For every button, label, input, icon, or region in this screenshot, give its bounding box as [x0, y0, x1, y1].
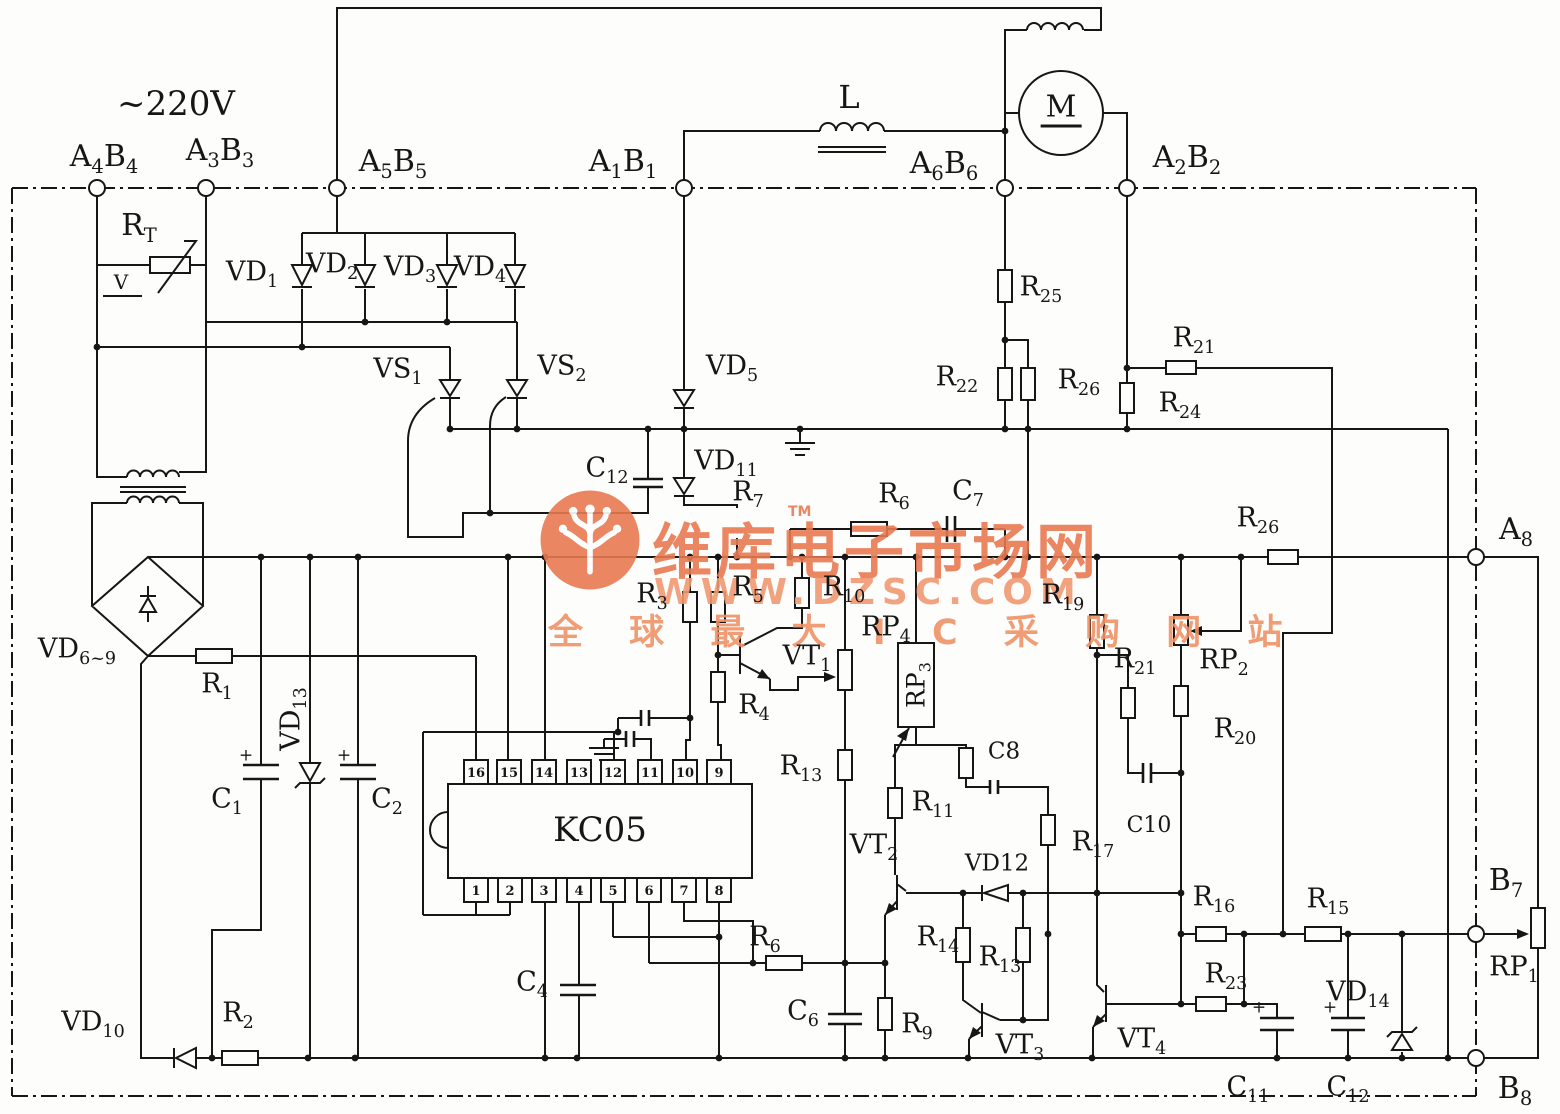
- terminal-dot-a4b4: [89, 180, 105, 196]
- label-plus-c2: +: [337, 748, 351, 765]
- ic-pin-14: 14: [535, 766, 553, 781]
- ic-pin-10: 10: [676, 766, 694, 781]
- terminal-dot-b7: [1468, 926, 1484, 942]
- terminal-dot-a8: [1468, 549, 1484, 565]
- label-cap-c4: C4: [516, 969, 548, 996]
- ic-pin-11: 11: [641, 766, 659, 781]
- terminal-dot-a5b5: [329, 180, 345, 196]
- resistors: [150, 257, 1545, 1065]
- ground-symbols: [589, 443, 815, 760]
- label-diode-vd10: VD10: [61, 1009, 124, 1036]
- label-cap-c7: C7: [952, 478, 984, 505]
- label-res-r15: R15: [1307, 886, 1350, 913]
- ic-pin-6: 6: [644, 884, 653, 899]
- label-res-r6-top: R6: [878, 481, 910, 508]
- label-pot-rp4: RP4: [861, 614, 911, 641]
- label-ic-kc05: KC05: [553, 813, 647, 847]
- label-transistor-vt3: VT3: [996, 1032, 1045, 1059]
- label-res-r20: R20: [1214, 716, 1257, 743]
- ic-pin-7: 7: [679, 884, 688, 899]
- label-pot-rp1: RP1: [1489, 954, 1539, 981]
- label-diode-vd13: VD13: [278, 687, 305, 750]
- label-bridge-vd6-9: VD6~9: [38, 636, 116, 663]
- label-diode-vd12: VD12: [965, 853, 1029, 876]
- label-res-r25: R25: [1020, 274, 1063, 301]
- label-pot-rp2: RP2: [1199, 647, 1249, 674]
- label-res-r13-a: R13: [780, 753, 823, 780]
- ic-pin-12: 12: [604, 766, 622, 781]
- label-plus-c11: +: [1252, 1000, 1266, 1017]
- label-terminal-b7: B7: [1489, 866, 1523, 896]
- label-cap-c6: C6: [787, 998, 819, 1025]
- ic-pin-15: 15: [500, 766, 518, 781]
- label-res-r23: R23: [1205, 961, 1248, 988]
- ic-pin-1: 1: [471, 884, 480, 899]
- label-varistor-v: V: [114, 272, 128, 292]
- label-cap-c12-top: C12: [586, 455, 629, 482]
- ic-pin-2: 2: [505, 884, 514, 899]
- label-res-r21-mid: R21: [1114, 646, 1157, 673]
- label-res-r24: R24: [1159, 390, 1202, 417]
- label-res-r26-mid: R26: [1058, 367, 1101, 394]
- label-thyristor-vs1: VS1: [373, 356, 422, 383]
- label-res-r16: R16: [1193, 884, 1236, 911]
- chassis-border: [12, 188, 1476, 1096]
- label-res-r26-right: R26: [1237, 505, 1280, 532]
- label-transistor-vt2: VT2: [850, 832, 899, 859]
- label-res-r14: R14: [917, 924, 960, 951]
- label-res-r10: R10: [823, 574, 866, 601]
- label-transistor-vt1: VT1: [783, 643, 832, 670]
- label-cap-c8: C8: [988, 741, 1020, 764]
- label-res-r7: R7: [732, 479, 764, 506]
- label-diode-vd4: VD4: [454, 254, 506, 281]
- ic-pin-16: 16: [467, 766, 485, 781]
- label-res-r13-b: R13: [979, 944, 1022, 971]
- label-cap-c2: C2: [371, 786, 403, 813]
- label-diode-vd11: VD11: [694, 448, 757, 475]
- label-thermistor-rt: RT: [121, 211, 157, 241]
- label-res-r6-bottom: R6: [749, 924, 781, 951]
- label-res-r9: R9: [901, 1011, 933, 1038]
- label-transistor-vt4: VT4: [1118, 1026, 1167, 1053]
- label-terminal-a3b3: A3B3: [186, 136, 255, 166]
- label-res-r19: R19: [1042, 582, 1085, 609]
- terminal-dot-a2b2: [1119, 180, 1135, 196]
- ic-pin-9: 9: [714, 766, 723, 781]
- label-res-r22: R22: [936, 364, 979, 391]
- label-terminal-a1b1: A1B1: [589, 147, 658, 177]
- label-pot-rp3: RP3: [904, 662, 929, 708]
- label-terminal-a8: A8: [1499, 515, 1533, 545]
- label-res-r2: R2: [222, 1000, 254, 1027]
- terminal-dot-b8: [1468, 1050, 1484, 1066]
- label-diode-vd1: VD1: [226, 259, 278, 286]
- label-plus-c12: +: [1323, 1000, 1337, 1017]
- label-inductor-l: L: [838, 81, 859, 113]
- label-res-r1: R1: [201, 671, 233, 698]
- label-terminal-a5b5: A5B5: [359, 147, 428, 177]
- ic-pin-8: 8: [714, 884, 723, 899]
- inductor-l-coil: [820, 123, 884, 131]
- label-res-r4: R4: [738, 692, 770, 719]
- ic-pin-4: 4: [574, 884, 583, 899]
- label-motor-m: M: [1041, 93, 1082, 128]
- terminal-dot-a3b3: [198, 180, 214, 196]
- ic-pin-5: 5: [608, 884, 617, 899]
- label-thyristor-vs2: VS2: [537, 353, 586, 380]
- label-terminal-a4b4: A4B4: [70, 142, 139, 172]
- label-cap-c1: C1: [211, 786, 243, 813]
- label-cap-c11: C11: [1227, 1074, 1270, 1101]
- label-res-r17: R17: [1072, 829, 1115, 856]
- label-diode-vd3: VD3: [384, 254, 436, 281]
- label-diode-vd2: VD2: [306, 251, 358, 278]
- label-cap-c12-bottom: C12: [1327, 1074, 1370, 1101]
- label-cap-c10: C10: [1127, 815, 1172, 837]
- label-res-r11: R11: [912, 789, 955, 816]
- label-res-r3: R3: [636, 581, 668, 608]
- label-supply-voltage: ~220V: [117, 87, 235, 121]
- label-terminal-a2b2: A2B2: [1153, 143, 1222, 173]
- terminal-dot-a1b1: [676, 180, 692, 196]
- motor-field-coil: [1027, 23, 1083, 30]
- label-res-r21-top: R21: [1173, 325, 1216, 352]
- ic-pin-13: 13: [570, 766, 588, 781]
- label-plus-c1: +: [239, 748, 253, 765]
- terminal-dot-a6b6: [997, 180, 1013, 196]
- label-diode-vd5: VD5: [706, 353, 758, 380]
- label-res-r5: R5: [732, 574, 764, 601]
- label-terminal-b8: B8: [1498, 1074, 1532, 1104]
- label-terminal-a6b6: A6B6: [910, 149, 979, 179]
- schematic-page: 16151413121110912345678 维库电子市场网 TM: [0, 0, 1560, 1114]
- ic-pin-3: 3: [539, 884, 548, 899]
